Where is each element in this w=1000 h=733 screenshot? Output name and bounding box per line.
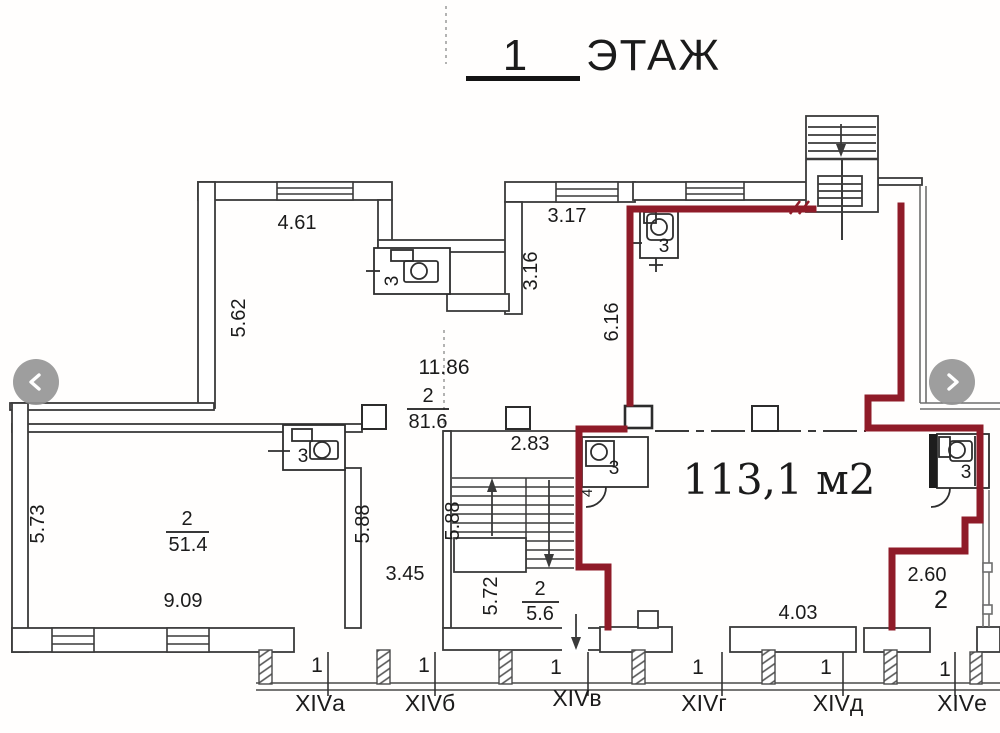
carousel-next-button[interactable] <box>929 359 975 405</box>
floorplan-viewer: 1 ЭТАЖ <box>0 0 1000 733</box>
facade-piers <box>259 650 982 684</box>
wc-label: 3 <box>609 458 620 479</box>
carousel-prev-button[interactable] <box>13 359 59 405</box>
axis-unit: 1 <box>692 656 704 679</box>
window-top-2 <box>556 182 618 202</box>
window-bottom-1 <box>52 628 94 652</box>
axis-label-xivv: XIVв <box>552 685 601 711</box>
room-56-num: 2 <box>534 578 545 600</box>
room-260-num: 2 <box>934 586 948 614</box>
floor-plan: 1 ЭТАЖ <box>0 0 1000 733</box>
wc-label: 3 <box>298 446 309 467</box>
stairwell-top <box>806 116 878 240</box>
dim-6-16: 6.16 <box>601 303 623 342</box>
title-word: ЭТАЖ <box>586 31 721 80</box>
dim-3-17: 3.17 <box>548 205 587 227</box>
axis-label-xivg: XIVг <box>681 690 726 716</box>
axis-label-xivb: XIVб <box>405 690 455 716</box>
dim-5-88-b: 5.88 <box>442 502 464 541</box>
stairs-down-arrow <box>544 480 554 568</box>
dim-11-86: 11.86 <box>419 356 470 379</box>
room-816-area: 81.6 <box>409 411 448 433</box>
room-816-num: 2 <box>422 385 433 407</box>
room-514-num: 2 <box>181 508 192 530</box>
wc-alt-label: 4 <box>579 489 596 497</box>
axis-unit: 1 <box>550 656 562 679</box>
axis-unit-labels: 1 1 1 1 1 1 <box>311 654 951 681</box>
dim-3-45: 3.45 <box>386 563 425 585</box>
dim-5-73: 5.73 <box>27 505 49 544</box>
stairs-main <box>452 478 574 572</box>
axis-unit: 1 <box>939 658 951 681</box>
dim-3-16: 3.16 <box>520 252 542 291</box>
dim-2-60: 2.60 <box>908 564 947 586</box>
dim-5-72: 5.72 <box>480 577 502 616</box>
window-top-1 <box>277 182 353 200</box>
wc-top-middle <box>366 248 450 294</box>
axis-label-xiva: XIVа <box>295 690 345 716</box>
window-bottom-2 <box>167 628 209 652</box>
wc-top-center <box>630 210 678 272</box>
drawing-title: 1 ЭТАЖ <box>466 31 721 81</box>
dim-2-83: 2.83 <box>511 433 550 455</box>
wc-label: 3 <box>659 236 670 257</box>
room-514-area: 51.4 <box>169 534 208 556</box>
chevron-right-icon <box>941 371 963 393</box>
axis-label-xive: XIVе <box>937 690 987 716</box>
axis-unit: 1 <box>418 654 430 677</box>
window-top-3 <box>686 182 744 200</box>
chevron-left-icon <box>25 371 47 393</box>
wc-label: 3 <box>382 276 403 287</box>
right-gray-walls <box>920 186 1000 627</box>
room-56-area: 5.6 <box>526 603 554 625</box>
dim-4-03: 4.03 <box>779 602 818 624</box>
dim-9-09: 9.09 <box>164 590 203 612</box>
dim-5-88-a: 5.88 <box>352 505 374 544</box>
axis-unit: 1 <box>820 656 832 679</box>
axis-unit: 1 <box>311 654 323 677</box>
dim-5-62: 5.62 <box>228 299 250 338</box>
wc-label: 3 <box>961 462 972 483</box>
title-underline <box>466 76 580 81</box>
title-number: 1 <box>503 31 529 80</box>
dim-4-61: 4.61 <box>278 212 317 234</box>
highlight-area-label: 113,1 м2 <box>683 455 876 504</box>
axis-label-xivd: XIVд <box>813 690 864 716</box>
